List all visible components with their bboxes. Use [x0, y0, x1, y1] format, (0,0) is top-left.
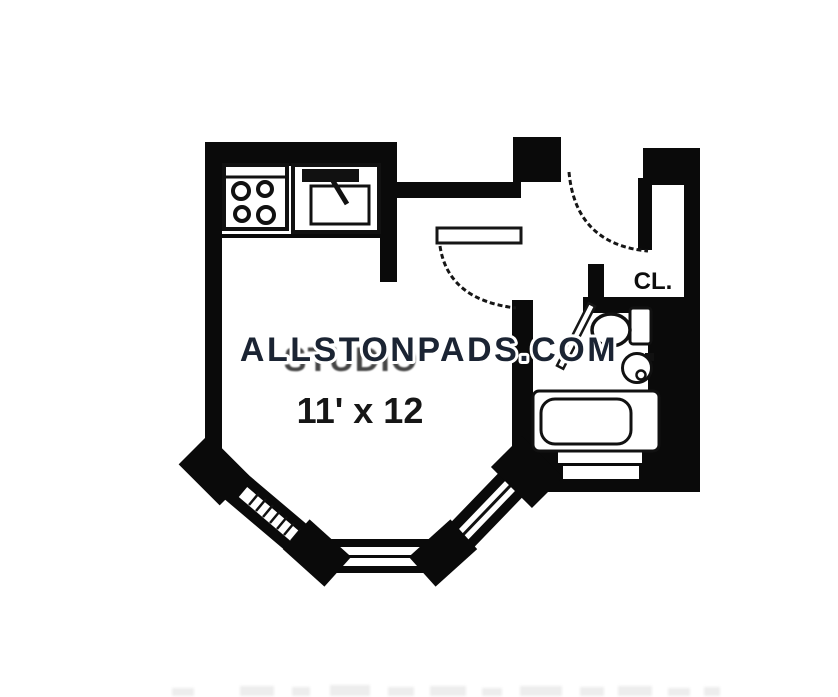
kitchen-sink-icon	[293, 165, 379, 232]
kitchen-counter	[222, 165, 380, 238]
entry-door-swing-icon	[569, 172, 648, 251]
bathtub-icon	[533, 391, 659, 451]
wall-top-kitchen	[205, 142, 397, 166]
bathroom-sink-icon	[623, 353, 655, 383]
wall-closet-left	[638, 178, 652, 250]
watermark-text: ALLSTONPADS.COM	[240, 331, 618, 369]
wall-left	[205, 142, 222, 457]
interior-door-leaf-icon	[437, 228, 521, 243]
floor-plan-image: CL. STUDIO ALLSTONPADS.COM 11' x 12	[0, 0, 838, 697]
bay-window-icon	[179, 435, 563, 587]
interior-door-swing-icon	[440, 246, 516, 308]
wall-entry-top	[395, 182, 521, 198]
ghost-text-strip	[172, 685, 720, 696]
closet-label: CL.	[634, 268, 673, 295]
wall-entry-door-jamb	[513, 137, 561, 182]
stove-burners-icon	[224, 165, 287, 229]
wall-kitchen-right	[380, 142, 397, 282]
bathroom-fixtures	[533, 308, 659, 451]
room-dimensions-label: 11' x 12	[297, 390, 424, 431]
